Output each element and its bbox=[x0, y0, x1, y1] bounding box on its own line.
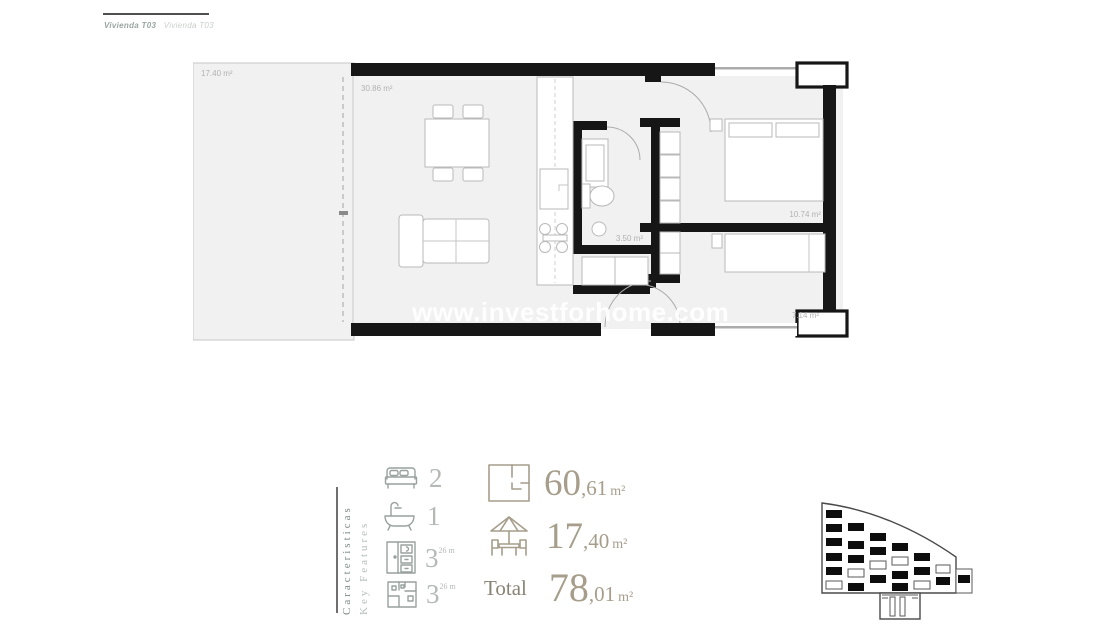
cabinet bbox=[582, 257, 615, 285]
layout-count: 326 m bbox=[426, 581, 456, 608]
basin bbox=[592, 222, 606, 236]
wardrobes bbox=[660, 132, 680, 274]
bedrooms-count: 2 bbox=[429, 465, 443, 492]
built-area-unit: m² bbox=[610, 484, 625, 499]
total-area-unit: m² bbox=[618, 590, 633, 605]
built-area-dec: ,61 bbox=[581, 476, 607, 500]
total-area-dec: ,01 bbox=[589, 582, 615, 606]
feature-bathrooms: 1 bbox=[381, 500, 441, 532]
header-titles: Vivienda T03 Vivienda T03 bbox=[104, 21, 214, 30]
kitchen bbox=[537, 77, 573, 285]
building-elevation-diagram bbox=[806, 497, 974, 621]
floorplan-icon bbox=[486, 462, 532, 504]
terrace-area-int: 17 bbox=[546, 516, 583, 557]
terrace-area-unit: m² bbox=[612, 537, 627, 552]
sofa bbox=[399, 215, 489, 267]
bedroom2-area-label: 7.14 m² bbox=[792, 311, 819, 320]
bathrooms-count: 1 bbox=[427, 503, 441, 530]
wardrobes-count: 326 m bbox=[425, 545, 455, 572]
bed-icon bbox=[383, 464, 421, 492]
feature-layout: 326 m bbox=[386, 578, 456, 610]
layout-count-value: 3 bbox=[426, 579, 440, 609]
cabinet bbox=[615, 257, 648, 285]
features-title-es: Caracteristicas bbox=[341, 487, 353, 615]
header-rule bbox=[103, 13, 209, 15]
nightstand bbox=[710, 119, 722, 131]
feature-bedrooms: 2 bbox=[383, 464, 443, 492]
terrace-area-row: 17,40m² bbox=[484, 514, 627, 558]
unit-title-en: Vivienda T03 bbox=[164, 21, 214, 30]
terrace-area bbox=[193, 63, 354, 340]
watermark: www.investforhome.com bbox=[412, 297, 718, 328]
wardrobes-count-sup: 26 m bbox=[439, 546, 455, 555]
features-rule bbox=[336, 487, 338, 613]
built-area-row: 60,61m² bbox=[486, 462, 625, 504]
terrace-icon bbox=[484, 514, 534, 558]
total-area-row: Total 78,01m² bbox=[484, 568, 633, 608]
living-area-label: 30.86 m² bbox=[361, 84, 393, 93]
page: Vivienda T03 Vivienda T03 bbox=[0, 0, 1110, 626]
features-titles: Caracteristicas Key Features bbox=[341, 487, 370, 615]
total-label: Total bbox=[484, 576, 527, 601]
features-title-en: Key Features bbox=[358, 487, 370, 615]
window-top bbox=[715, 67, 797, 70]
total-area-int: 78 bbox=[549, 565, 589, 610]
toilet-tank bbox=[582, 184, 590, 208]
layout-count-sup: 26 m bbox=[440, 582, 456, 591]
kitchen-sink bbox=[540, 169, 568, 209]
built-area-int: 60 bbox=[544, 463, 581, 504]
nightstand bbox=[712, 234, 722, 248]
toilet-bowl bbox=[590, 186, 614, 206]
door-jamb-tick bbox=[339, 211, 348, 215]
bathroom-area-label: 3.50 m² bbox=[616, 234, 643, 243]
bed-2 bbox=[725, 234, 825, 272]
wardrobe-icon bbox=[385, 540, 417, 576]
bath-icon bbox=[381, 500, 419, 532]
bedroom1-area-label: 10.74 m² bbox=[789, 210, 821, 219]
terrace-area-label: 17.40 m² bbox=[201, 69, 233, 78]
feature-wardrobes: 326 m bbox=[385, 540, 455, 576]
corner-pillar-tr bbox=[797, 63, 847, 87]
unit-title-es: Vivienda T03 bbox=[104, 21, 156, 30]
stair-core bbox=[880, 593, 920, 619]
layout-icon bbox=[386, 578, 418, 610]
terrace-area-dec: ,40 bbox=[583, 529, 609, 553]
wardrobes-count-value: 3 bbox=[425, 543, 439, 573]
